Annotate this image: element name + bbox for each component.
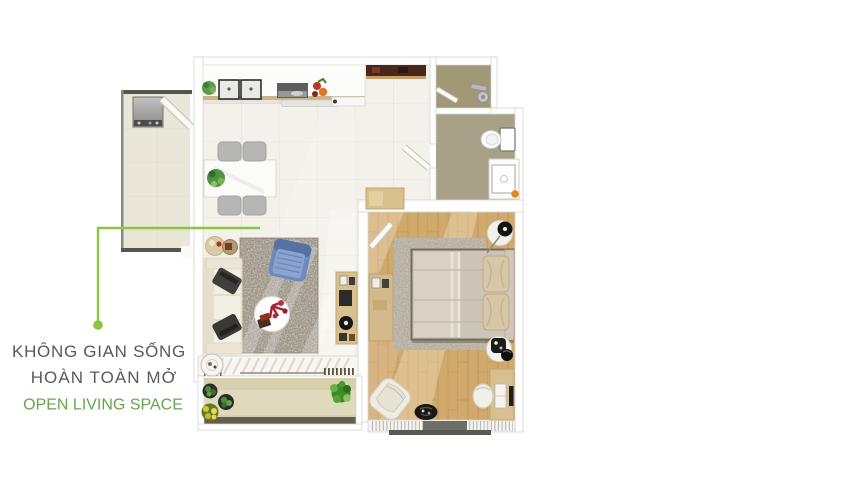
svg-text:OPEN LIVING SPACE: OPEN LIVING SPACE (23, 397, 183, 414)
svg-text:KHÔNG GIAN SỐNG: KHÔNG GIAN SỐNG (12, 341, 186, 361)
svg-text:HOÀN TOÀN MỞ: HOÀN TOÀN MỞ (31, 368, 178, 387)
